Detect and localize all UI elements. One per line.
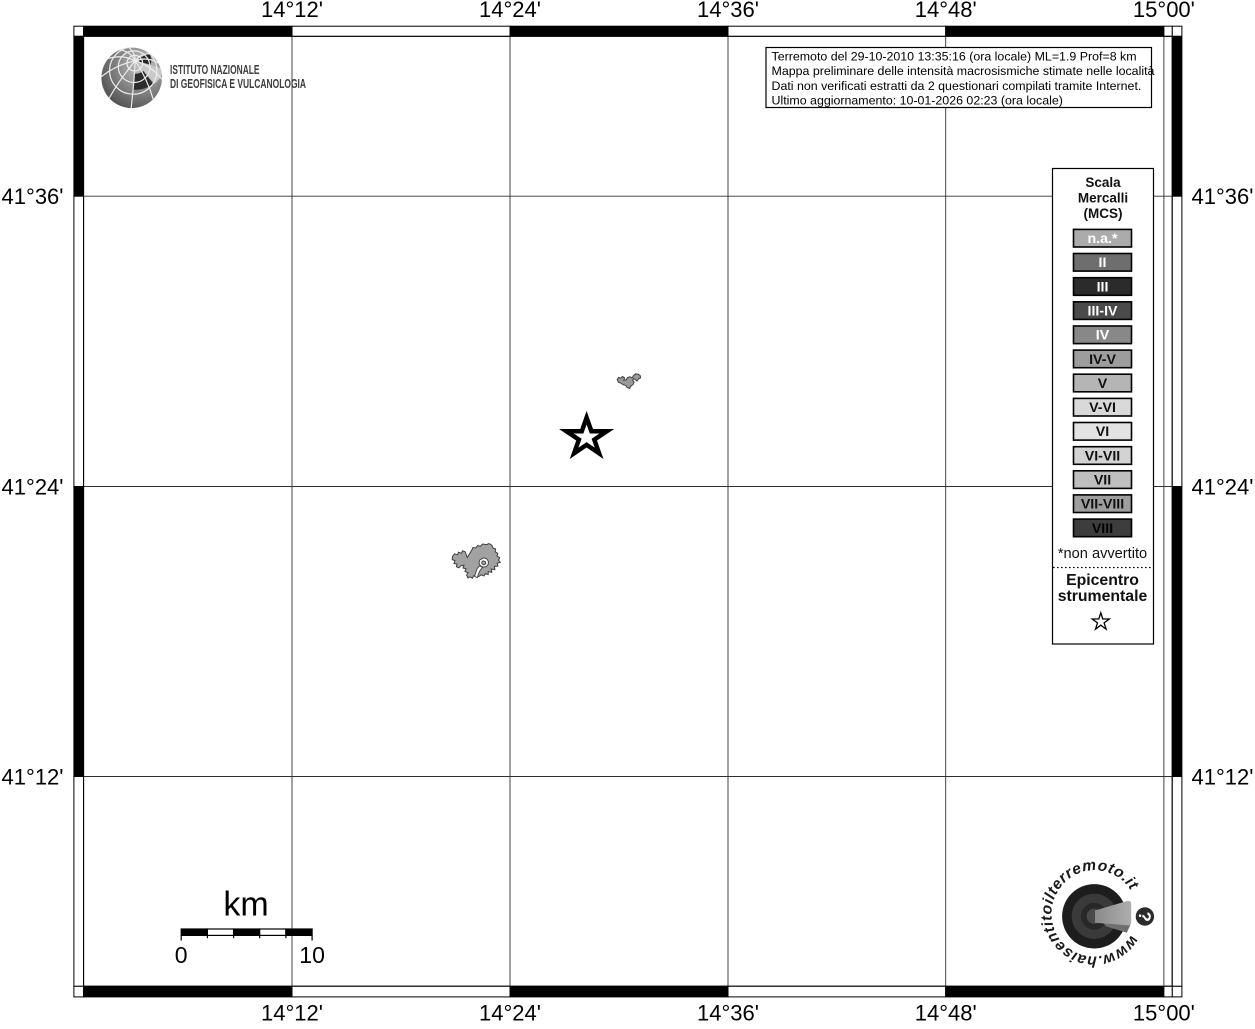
svg-text:VIII: VIII — [1092, 521, 1113, 537]
svg-text:V-VI: V-VI — [1089, 400, 1116, 416]
svg-text:0: 0 — [175, 942, 188, 968]
svg-text:14°36': 14°36' — [697, 1001, 759, 1025]
svg-text:41°24': 41°24' — [2, 475, 64, 500]
svg-text:14°12': 14°12' — [261, 0, 323, 22]
svg-text:DI GEOFISICA E VULCANOLOGIA: DI GEOFISICA E VULCANOLOGIA — [170, 76, 306, 91]
svg-text:Terremoto del 29-10-2010 13:35: Terremoto del 29-10-2010 13:35:16 (ora l… — [772, 49, 1137, 63]
svg-text:VI-VII: VI-VII — [1085, 448, 1120, 464]
svg-text:10: 10 — [299, 942, 325, 968]
svg-text:15°00': 15°00' — [1133, 1001, 1195, 1025]
svg-text:IV: IV — [1096, 328, 1110, 344]
svg-text:VI: VI — [1096, 424, 1109, 440]
svg-text:Ultimo aggiornamento: 10-01-20: Ultimo aggiornamento: 10-01-2026 02:23 (… — [772, 94, 1063, 108]
svg-text:41°36': 41°36' — [1192, 184, 1254, 209]
svg-text:Epicentro: Epicentro — [1066, 572, 1139, 589]
svg-text:41°24': 41°24' — [1192, 475, 1254, 500]
svg-text:41°12': 41°12' — [2, 765, 64, 790]
svg-text:III: III — [1097, 279, 1109, 295]
svg-text:VII-VIII: VII-VIII — [1081, 497, 1124, 513]
svg-text:14°24': 14°24' — [479, 1001, 541, 1025]
svg-text:Scala: Scala — [1085, 175, 1121, 190]
svg-text:14°48': 14°48' — [915, 1001, 977, 1025]
svg-text:IV-V: IV-V — [1089, 352, 1116, 368]
svg-text:strumentale: strumentale — [1058, 588, 1148, 605]
svg-text:Mercalli: Mercalli — [1078, 190, 1128, 205]
svg-text:ISTITUTO NAZIONALE: ISTITUTO NAZIONALE — [170, 62, 260, 77]
svg-text:Dati non verificati estratti d: Dati non verificati estratti da 2 questi… — [772, 79, 1142, 93]
svg-text:II: II — [1099, 255, 1107, 271]
svg-text:41°36': 41°36' — [2, 184, 64, 209]
svg-text:15°00': 15°00' — [1133, 0, 1195, 22]
svg-text:V: V — [1098, 376, 1108, 392]
svg-text:?: ? — [1134, 910, 1154, 922]
svg-text:III-IV: III-IV — [1088, 304, 1118, 320]
svg-text:(MCS): (MCS) — [1084, 206, 1123, 221]
svg-text:km: km — [223, 886, 268, 924]
svg-text:41°12': 41°12' — [1192, 765, 1254, 790]
svg-text:VII: VII — [1094, 473, 1111, 489]
svg-text:14°24': 14°24' — [479, 0, 541, 22]
svg-text:*non avvertito: *non avvertito — [1058, 546, 1147, 562]
svg-text:14°36': 14°36' — [697, 0, 759, 22]
svg-text:n.a.*: n.a.* — [1088, 231, 1118, 247]
svg-text:14°48': 14°48' — [915, 0, 977, 22]
svg-text:14°12': 14°12' — [261, 1001, 323, 1025]
svg-text:Mappa preliminare delle intens: Mappa preliminare delle intensità macros… — [772, 64, 1155, 78]
